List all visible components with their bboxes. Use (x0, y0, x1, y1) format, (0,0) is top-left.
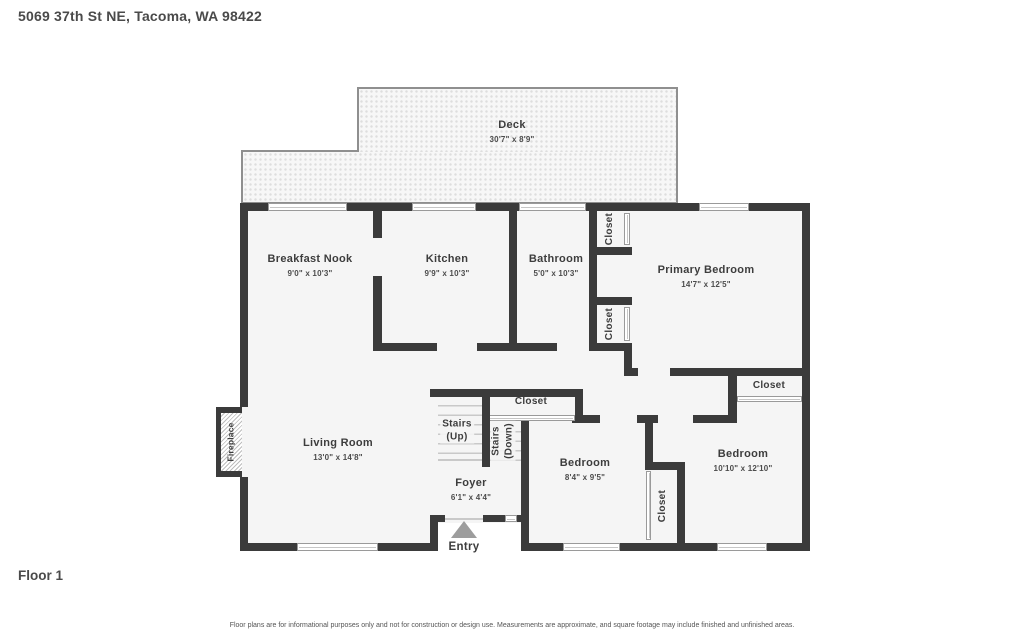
wall (802, 203, 810, 551)
closet-label-between-bedrooms: Closet (657, 490, 670, 522)
stairs-up-line1: Stairs (442, 419, 472, 432)
window (699, 203, 749, 211)
wall (521, 421, 529, 551)
deck-dims: 30'7" x 8'9" (490, 135, 535, 145)
window (412, 203, 476, 211)
stair-landing-line (438, 459, 482, 461)
kitchen-name: Kitchen (426, 253, 468, 265)
wall (749, 203, 810, 211)
window (519, 203, 586, 211)
stairs-up-line2: (Up) (442, 431, 472, 444)
wall (430, 389, 583, 397)
wall (373, 211, 382, 238)
closet-label-lower: Closet (604, 308, 617, 340)
closet-door (624, 213, 630, 245)
floorplan-page: 5069 37th St NE, Tacoma, WA 98422 Deck 3… (0, 0, 1024, 640)
stairs-down-line2: (Down) (503, 423, 516, 459)
wall (575, 397, 583, 423)
sliding-door (737, 396, 802, 402)
address-title: 5069 37th St NE, Tacoma, WA 98422 (18, 8, 262, 24)
wall (693, 415, 728, 423)
foyer-dims: 6'1" x 4'4" (451, 493, 491, 503)
breakfast-nook-name: Breakfast Nook (268, 253, 353, 265)
closet-label-hall: Closet (515, 396, 547, 409)
wall (624, 368, 638, 376)
stairs-up-label: Stairs (Up) (440, 419, 474, 444)
room-label-deck: Deck 30'7" x 8'9" (490, 119, 535, 145)
wall (620, 543, 717, 551)
living-room-dims: 13'0" x 14'8" (303, 453, 373, 463)
wall (509, 211, 517, 351)
primary-bedroom-name: Primary Bedroom (658, 264, 755, 276)
sliding-door (487, 415, 575, 421)
room-label-bedroom-large: Bedroom 10'10" x 12'10" (714, 448, 773, 474)
bathroom-dims: 5'0" x 10'3" (529, 269, 583, 279)
sliding-door (646, 471, 651, 540)
breakfast-nook-dims: 9'0" x 10'3" (268, 269, 353, 279)
primary-bedroom-dims: 14'7" x 12'5" (658, 280, 755, 290)
room-label-primary-bedroom: Primary Bedroom 14'7" x 12'5" (658, 264, 755, 290)
entry-arrow-icon (451, 521, 477, 538)
window (268, 203, 347, 211)
wall (589, 297, 632, 305)
bedroom-small-name: Bedroom (560, 457, 610, 469)
room-label-breakfast-nook: Breakfast Nook 9'0" x 10'3" (268, 253, 353, 279)
wall (240, 477, 248, 551)
wall (483, 515, 505, 522)
wall (378, 543, 438, 551)
wall (586, 203, 699, 211)
window (563, 543, 620, 551)
disclaimer-text: Floor plans are for informational purpos… (0, 622, 1024, 629)
wall (240, 203, 248, 407)
wall (240, 543, 297, 551)
window (717, 543, 767, 551)
deck-name: Deck (498, 119, 526, 131)
bedroom-large-dims: 10'10" x 12'10" (714, 464, 773, 474)
fireplace-label: Fireplace (226, 422, 237, 461)
bedroom-large-name: Bedroom (718, 448, 768, 460)
wall (347, 203, 412, 211)
closet-label-upper: Closet (604, 213, 617, 245)
room-label-bathroom: Bathroom 5'0" x 10'3" (529, 253, 583, 279)
wall (430, 515, 445, 522)
bathroom-name: Bathroom (529, 253, 583, 265)
living-room-name: Living Room (303, 437, 373, 449)
floor-number-label: Floor 1 (18, 568, 63, 583)
wall (373, 343, 437, 351)
wall (677, 470, 685, 543)
wall (670, 368, 810, 376)
room-label-foyer: Foyer 6'1" x 4'4" (451, 477, 491, 503)
room-label-bedroom-small: Bedroom 8'4" x 9'5" (560, 457, 610, 483)
foyer-name: Foyer (455, 477, 486, 489)
entry-label: Entry (449, 540, 480, 554)
wall (529, 543, 563, 551)
wall (589, 247, 632, 255)
wall (373, 276, 382, 351)
window (297, 543, 378, 551)
closet-door (624, 307, 630, 341)
wall (589, 203, 597, 351)
wall (767, 543, 810, 551)
wall (476, 203, 519, 211)
wall (645, 462, 685, 470)
stairs-down-label: Stairs (Down) (491, 421, 516, 461)
window (505, 515, 517, 522)
wall (728, 376, 737, 423)
wall (477, 343, 557, 351)
deck-area-lower (241, 152, 678, 204)
deck-edge (241, 150, 359, 152)
room-label-living-room: Living Room 13'0" x 14'8" (303, 437, 373, 463)
bedroom-small-dims: 8'4" x 9'5" (560, 473, 610, 483)
wall (482, 397, 490, 467)
closet-label-bedroom-large: Closet (753, 380, 785, 393)
room-label-kitchen: Kitchen 9'9" x 10'3" (425, 253, 470, 279)
kitchen-dims: 9'9" x 10'3" (425, 269, 470, 279)
door-threshold (445, 518, 483, 520)
stairs-down-line1: Stairs (491, 423, 504, 459)
